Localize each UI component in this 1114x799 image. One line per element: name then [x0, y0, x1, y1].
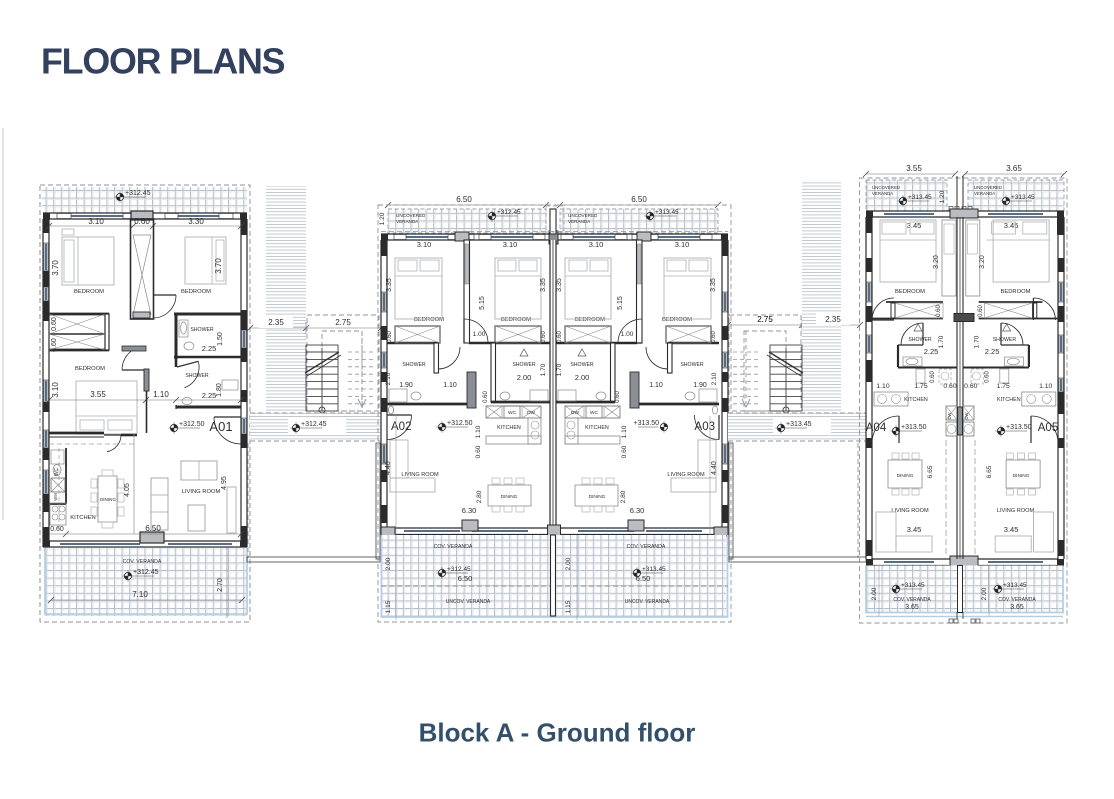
svg-text:1.70: 1.70	[974, 335, 981, 348]
svg-text:+312.45: +312.45	[301, 421, 327, 428]
svg-text:COV. VERANDA: COV. VERANDA	[434, 544, 473, 550]
svg-text:3.45: 3.45	[907, 525, 922, 534]
svg-text:DW: DW	[964, 412, 969, 419]
svg-text:0.60: 0.60	[930, 371, 936, 383]
svg-text:BEDROOM: BEDROOM	[662, 317, 692, 323]
svg-text:Block A - Ground floor: Block A - Ground floor	[419, 718, 696, 748]
svg-text:SHOWER: SHOWER	[512, 362, 536, 368]
svg-text:3.10: 3.10	[88, 217, 104, 226]
svg-text:1.10: 1.10	[649, 382, 663, 389]
svg-text:6.50: 6.50	[145, 524, 161, 533]
svg-text:BEDROOM: BEDROOM	[895, 289, 925, 295]
svg-text:3.55: 3.55	[906, 164, 922, 173]
svg-text:SHOWER: SHOWER	[402, 362, 426, 368]
svg-text:BEDROOM: BEDROOM	[75, 366, 105, 372]
svg-text:6.30: 6.30	[462, 506, 477, 515]
svg-text:VERANDA: VERANDA	[872, 191, 893, 196]
svg-text:3.70: 3.70	[214, 258, 223, 274]
svg-text:3.35: 3.35	[556, 278, 563, 292]
svg-text:3.65: 3.65	[1006, 164, 1022, 173]
svg-text:BEDROOM: BEDROOM	[414, 317, 444, 323]
svg-text:+313.45: +313.45	[908, 194, 932, 201]
svg-text:DINING: DINING	[1013, 473, 1030, 479]
svg-text:SHOWER: SHOWER	[570, 362, 594, 368]
svg-text:1.75: 1.75	[914, 383, 927, 390]
svg-text:WM: WM	[53, 493, 58, 501]
svg-text:1.90: 1.90	[693, 382, 707, 389]
svg-text:3.35: 3.35	[540, 278, 547, 292]
svg-text:BEDROOM: BEDROOM	[501, 317, 531, 323]
svg-text:+313.45: +313.45	[901, 582, 925, 589]
svg-text:6.50: 6.50	[456, 195, 472, 204]
svg-text:6.50: 6.50	[631, 195, 647, 204]
svg-text:4.40: 4.40	[385, 461, 392, 475]
svg-text:DW: DW	[947, 412, 952, 419]
svg-text:0.60: 0.60	[541, 331, 547, 343]
svg-text:2.75: 2.75	[757, 315, 773, 324]
svg-text:0.60: 0.60	[978, 305, 984, 317]
svg-text:3.45: 3.45	[1004, 525, 1019, 534]
svg-text:VERANDA: VERANDA	[974, 191, 995, 196]
svg-text:7.10: 7.10	[132, 590, 148, 599]
svg-text:3.65: 3.65	[905, 604, 919, 611]
svg-text:+312.45: +312.45	[125, 190, 151, 197]
svg-text:0.60: 0.60	[483, 391, 489, 403]
svg-text:LIVING ROOM: LIVING ROOM	[401, 472, 439, 478]
svg-text:2.75: 2.75	[335, 318, 351, 327]
svg-text:1.10: 1.10	[876, 383, 889, 390]
svg-text:6.30: 6.30	[630, 506, 645, 515]
svg-text:COV. VERANDA: COV. VERANDA	[998, 597, 1036, 603]
svg-text:0.60: 0.60	[387, 331, 393, 343]
svg-text:2.70: 2.70	[217, 578, 224, 592]
svg-text:0.60: 0.60	[621, 445, 628, 458]
svg-text:0.60: 0.60	[943, 383, 956, 390]
svg-text:+312.50: +312.50	[447, 420, 473, 427]
svg-text:SHOWER: SHOWER	[190, 327, 214, 333]
svg-text:2.35: 2.35	[825, 315, 841, 324]
svg-text:1.20: 1.20	[939, 190, 946, 203]
svg-text:LIVING ROOM: LIVING ROOM	[997, 508, 1035, 514]
svg-text:6.65: 6.65	[927, 465, 934, 478]
svg-text:2.00: 2.00	[871, 587, 878, 600]
svg-text:2.00: 2.00	[575, 373, 590, 382]
svg-text:3.35: 3.35	[710, 278, 717, 292]
svg-text:3.10: 3.10	[589, 240, 604, 249]
svg-text:UNCOVERED: UNCOVERED	[974, 185, 1002, 190]
svg-text:KITCHEN: KITCHEN	[585, 425, 609, 431]
svg-text:6.50: 6.50	[458, 574, 473, 583]
svg-text:1.90: 1.90	[399, 382, 413, 389]
svg-text:2.00: 2.00	[517, 373, 532, 382]
svg-text:0.60: 0.60	[985, 371, 991, 383]
svg-text:UNCOV. VERANDA: UNCOV. VERANDA	[446, 599, 491, 605]
svg-text:COV. VERANDA: COV. VERANDA	[893, 597, 931, 603]
svg-text:UNCOVERED: UNCOVERED	[396, 213, 426, 218]
svg-text:3.10: 3.10	[503, 240, 518, 249]
svg-text:2.25: 2.25	[985, 347, 1000, 356]
svg-text:DINING: DINING	[897, 473, 914, 479]
svg-text:3.20: 3.20	[933, 255, 940, 269]
svg-text:LIVING ROOM: LIVING ROOM	[891, 508, 929, 514]
svg-text:6.65: 6.65	[986, 465, 993, 478]
svg-text:1.70: 1.70	[938, 335, 945, 348]
svg-text:0.60: 0.60	[51, 317, 58, 331]
svg-text:+312.45: +312.45	[497, 209, 521, 216]
svg-text:3.70: 3.70	[51, 260, 60, 276]
svg-text:LIVING ROOM: LIVING ROOM	[667, 472, 705, 478]
svg-text:UNCOVERED: UNCOVERED	[872, 185, 900, 190]
svg-text:5.15: 5.15	[479, 296, 486, 310]
svg-text:1.15: 1.15	[565, 600, 572, 613]
svg-text:2.25: 2.25	[202, 391, 217, 400]
svg-text:COV. VERANDA: COV. VERANDA	[123, 559, 162, 565]
svg-text:0.60: 0.60	[936, 305, 942, 317]
svg-text:2.35: 2.35	[268, 318, 284, 327]
svg-text:DINING: DINING	[589, 494, 606, 500]
svg-text:2.25: 2.25	[202, 344, 217, 353]
svg-text:VERANDA: VERANDA	[396, 219, 419, 224]
svg-text:0.60: 0.60	[475, 445, 482, 458]
svg-text:0.60: 0.60	[557, 331, 563, 343]
svg-text:+312.45: +312.45	[447, 566, 471, 573]
svg-text:3.55: 3.55	[90, 390, 106, 399]
svg-text:LIVING ROOM: LIVING ROOM	[182, 489, 221, 495]
svg-text:6.50: 6.50	[636, 574, 651, 583]
svg-text:WC: WC	[508, 410, 517, 416]
svg-text:DW: DW	[571, 410, 579, 416]
svg-text:A01: A01	[209, 419, 232, 434]
svg-text:3.30: 3.30	[188, 217, 204, 226]
svg-text:1.10: 1.10	[443, 382, 457, 389]
svg-text:3.35: 3.35	[386, 278, 393, 292]
svg-text:SHOWER: SHOWER	[680, 362, 704, 368]
svg-text:2.25: 2.25	[924, 347, 939, 356]
svg-text:+313.45: +313.45	[1011, 194, 1035, 201]
svg-text:BEDROOM: BEDROOM	[74, 289, 104, 295]
svg-text:UNCOV. VERANDA: UNCOV. VERANDA	[625, 599, 670, 605]
svg-text:DINING: DINING	[100, 497, 117, 502]
svg-text:2.10: 2.10	[385, 372, 392, 385]
svg-text:+313.45: +313.45	[786, 421, 812, 428]
svg-text:+312.45: +312.45	[133, 569, 159, 576]
svg-text:2.10: 2.10	[711, 372, 718, 385]
svg-text:KITCHEN: KITCHEN	[497, 425, 521, 431]
svg-text:COV. VERANDA: COV. VERANDA	[627, 544, 666, 550]
svg-text:DINING: DINING	[501, 494, 518, 500]
svg-text:1.00: 1.00	[473, 331, 486, 338]
svg-text:UNCOVERED: UNCOVERED	[568, 213, 598, 218]
svg-text:1.00: 1.00	[621, 331, 634, 338]
svg-text:2.00: 2.00	[565, 557, 572, 570]
svg-text:A05: A05	[1038, 422, 1058, 434]
svg-text:5.15: 5.15	[617, 296, 624, 310]
svg-text:4.40: 4.40	[711, 461, 718, 475]
svg-text:1.10: 1.10	[475, 425, 482, 438]
svg-text:KITCHEN: KITCHEN	[997, 397, 1021, 403]
svg-text:1.75: 1.75	[997, 383, 1010, 390]
svg-text:+312.50: +312.50	[179, 421, 205, 428]
svg-text:VERANDA: VERANDA	[568, 219, 591, 224]
svg-text:0.60: 0.60	[50, 526, 64, 533]
svg-text:3.10: 3.10	[675, 240, 690, 249]
svg-text:+313.50: +313.50	[901, 424, 927, 431]
svg-text:+313.45: +313.45	[655, 209, 679, 216]
svg-text:3.65: 3.65	[1010, 604, 1024, 611]
svg-text:3.10: 3.10	[51, 382, 60, 398]
svg-text:+313.45: +313.45	[1003, 582, 1027, 589]
svg-text:2.00: 2.00	[981, 587, 988, 600]
svg-text:3.10: 3.10	[417, 240, 432, 249]
svg-text:1.50: 1.50	[217, 332, 224, 346]
svg-text:1.70: 1.70	[556, 363, 563, 376]
svg-text:1.20: 1.20	[379, 212, 386, 225]
svg-text:+313.50: +313.50	[1006, 424, 1032, 431]
svg-text:4.05: 4.05	[124, 483, 131, 497]
svg-text:0.60: 0.60	[615, 391, 621, 403]
svg-text:0.60: 0.60	[711, 331, 717, 343]
svg-text:1.10: 1.10	[1039, 383, 1052, 390]
svg-text:BEDROOM: BEDROOM	[181, 289, 211, 295]
svg-text:SHOWER: SHOWER	[908, 337, 932, 343]
svg-text:DW: DW	[527, 410, 535, 416]
svg-text:SHOWER: SHOWER	[993, 337, 1017, 343]
svg-text:4.95: 4.95	[221, 476, 228, 490]
svg-text:2.80: 2.80	[476, 490, 483, 503]
svg-text:0.60: 0.60	[964, 383, 977, 390]
svg-text:1.10: 1.10	[153, 390, 169, 399]
svg-text:1.70: 1.70	[540, 363, 547, 376]
svg-text:WC: WC	[590, 410, 599, 416]
svg-text:1.15: 1.15	[385, 600, 392, 613]
svg-text:2.00: 2.00	[385, 557, 392, 570]
svg-text:2.80: 2.80	[620, 490, 627, 503]
svg-text:1.10: 1.10	[621, 425, 628, 438]
svg-text:BEDROOM: BEDROOM	[575, 317, 605, 323]
svg-text:+313.45: +313.45	[642, 566, 666, 573]
svg-text:BEDROOM: BEDROOM	[1001, 289, 1031, 295]
svg-text:+313.50: +313.50	[634, 420, 660, 427]
svg-text:FLOOR PLANS: FLOOR PLANS	[41, 42, 285, 82]
svg-text:3.20: 3.20	[979, 255, 986, 269]
